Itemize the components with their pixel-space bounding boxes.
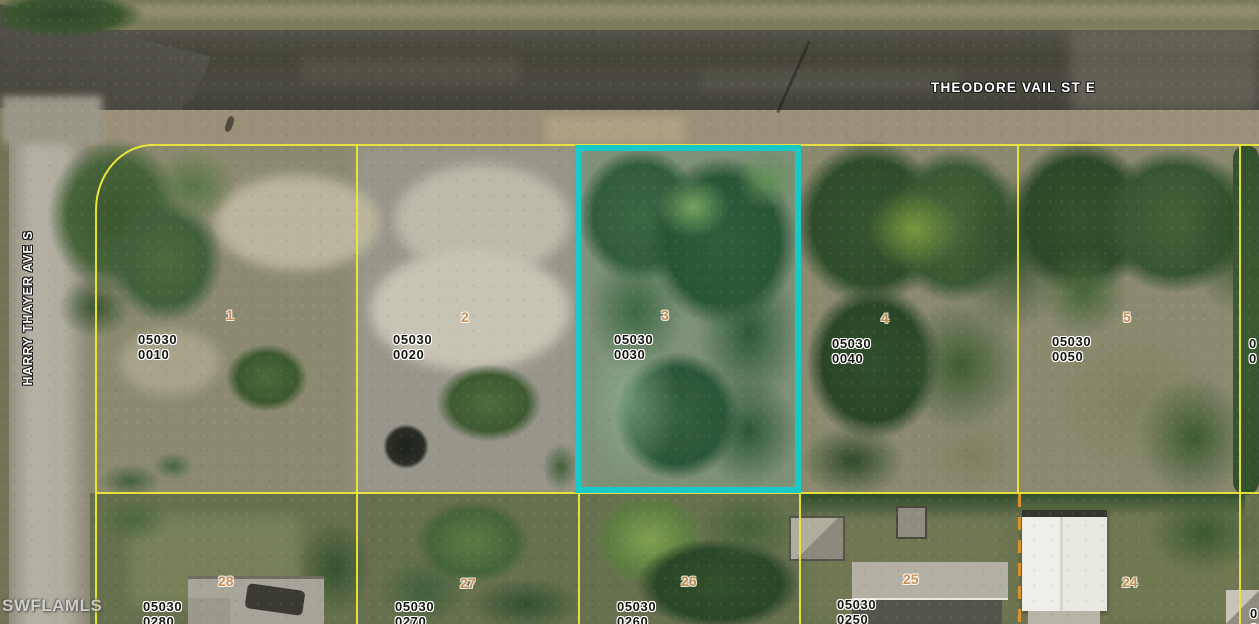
strap-line: 0010: [138, 347, 169, 362]
parcel-line-vertical: [1239, 494, 1241, 624]
parcel-label: 05030 0270: [395, 569, 412, 624]
strap-line: 0280: [143, 614, 174, 624]
lot-number: 2: [461, 310, 469, 324]
parcel-label: 05030 0250: [837, 567, 854, 624]
parcel-label: 05030 0040: [832, 306, 849, 366]
tree-canopy: [468, 578, 583, 624]
tree-canopy: [1148, 492, 1259, 574]
strap-line: 0270: [395, 614, 426, 624]
strap-line: 05030: [837, 597, 876, 612]
parcel-label-partial: 0 0: [1250, 576, 1259, 624]
building-white-roof-lot24: [1022, 510, 1107, 611]
shrub: [96, 496, 170, 544]
strap-line: 05030: [614, 332, 653, 347]
road-grass-edge: [0, 108, 9, 624]
building-small-shed: [896, 506, 927, 539]
strap-line: 05030: [143, 599, 182, 614]
top-grass-path: [0, 5, 1259, 18]
parcel-line-vertical: [356, 494, 358, 624]
tree-canopy: [868, 188, 960, 270]
lot-number: 25: [903, 572, 919, 586]
building-roof-lot25: [852, 562, 1008, 600]
parcel-label: 05030 0020: [393, 302, 410, 362]
road-wear-patch: [300, 55, 520, 83]
parcel-label: 05030 0260: [617, 569, 634, 624]
parcel-label-partial: 0 0: [1249, 306, 1259, 366]
parcel-label: 05030 0030: [614, 302, 631, 362]
tree-canopy: [898, 298, 1023, 433]
lot-number: 27: [460, 576, 476, 590]
road-light-section: [1070, 30, 1259, 114]
pond: [383, 424, 429, 469]
strap-line: 0030: [614, 347, 645, 362]
strap-line: 05030: [393, 332, 432, 347]
mls-watermark: SWFLAMLS: [2, 597, 102, 615]
tree-canopy: [800, 425, 905, 497]
strap-line: 0: [1249, 336, 1257, 351]
tree-canopy: [226, 344, 308, 412]
strap-line: 05030: [1052, 334, 1091, 349]
parcel-label: 05030 0010: [138, 302, 155, 362]
tree-canopy: [436, 364, 542, 442]
parcel-line-vertical: [578, 494, 580, 624]
strap-line: 0050: [1052, 349, 1083, 364]
lot-number: 4: [881, 311, 889, 325]
road-junction-blend: [2, 96, 102, 144]
parcel-line-vertical: [1239, 145, 1241, 493]
strap-line: 05030: [617, 599, 656, 614]
tree-canopy: [150, 148, 235, 223]
strap-line: 0040: [832, 351, 863, 366]
parcel-line-vertical: [1017, 145, 1019, 493]
lot-number: 28: [218, 574, 234, 588]
street-label-harry-thayer: HARRY THAYER AVE S: [21, 230, 35, 385]
strap-line: 05030: [832, 336, 871, 351]
lot-number: 26: [681, 574, 697, 588]
highlighted-parcel-outline: [575, 145, 801, 493]
lot-number: 24: [1122, 575, 1138, 589]
building-gabled-shed: [789, 516, 845, 561]
tree-canopy: [700, 492, 795, 564]
parcel-label: 05030 0280: [143, 569, 160, 624]
terrain-opening: [928, 418, 1020, 494]
strap-line: 0260: [617, 614, 648, 624]
building-concrete-pad: [1028, 611, 1100, 624]
parcel-line-left: [95, 208, 97, 624]
strap-line: 0250: [837, 612, 868, 624]
lot-number-highlighted: 3: [661, 308, 669, 322]
shrub: [152, 452, 194, 480]
road-wear-patch: [700, 68, 960, 92]
strap-line: 05030: [138, 332, 177, 347]
building-house-step: [188, 598, 230, 624]
strap-line: 0: [1250, 606, 1258, 621]
parcel-label: 05030 0050: [1052, 304, 1069, 364]
lot-number: 5: [1123, 310, 1131, 324]
parcel-line-vertical: [799, 494, 801, 624]
strap-line: 0: [1249, 351, 1257, 366]
road-shoulder-dirt: [545, 116, 685, 144]
parcel-line-dashed-orange: [1018, 494, 1021, 624]
strap-line: 05030: [395, 599, 434, 614]
aerial-parcel-map: 05030 0010 1 05030 0020 2 05030 0030 3 0…: [0, 0, 1259, 624]
street-label-theodore-vail: THEODORE VAIL ST E: [931, 81, 1096, 95]
lot-number: 1: [226, 308, 234, 322]
parcel-line-vertical: [356, 145, 358, 493]
strap-line: 0020: [393, 347, 424, 362]
